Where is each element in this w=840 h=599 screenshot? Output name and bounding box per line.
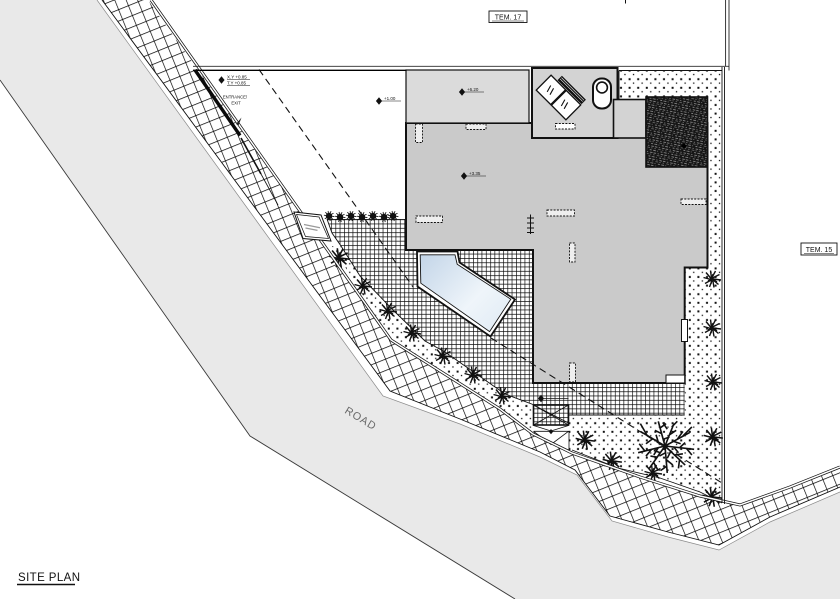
svg-text:EXIT: EXIT — [231, 101, 241, 106]
svg-text:T.Y +0.85: T.Y +0.85 — [227, 81, 247, 86]
svg-text:+3.35: +3.35 — [469, 171, 481, 176]
svg-text:TEM. 15: TEM. 15 — [806, 247, 833, 254]
svg-text:X.Y +0.85: X.Y +0.85 — [227, 75, 247, 80]
svg-text:ENTRANCE/: ENTRANCE/ — [223, 95, 248, 100]
svg-text:SITE PLAN: SITE PLAN — [18, 572, 80, 584]
svg-text:+6.20: +6.20 — [467, 87, 479, 92]
svg-text:+1.00: +1.00 — [384, 96, 396, 101]
svg-text:TEM. 17: TEM. 17 — [495, 15, 522, 22]
